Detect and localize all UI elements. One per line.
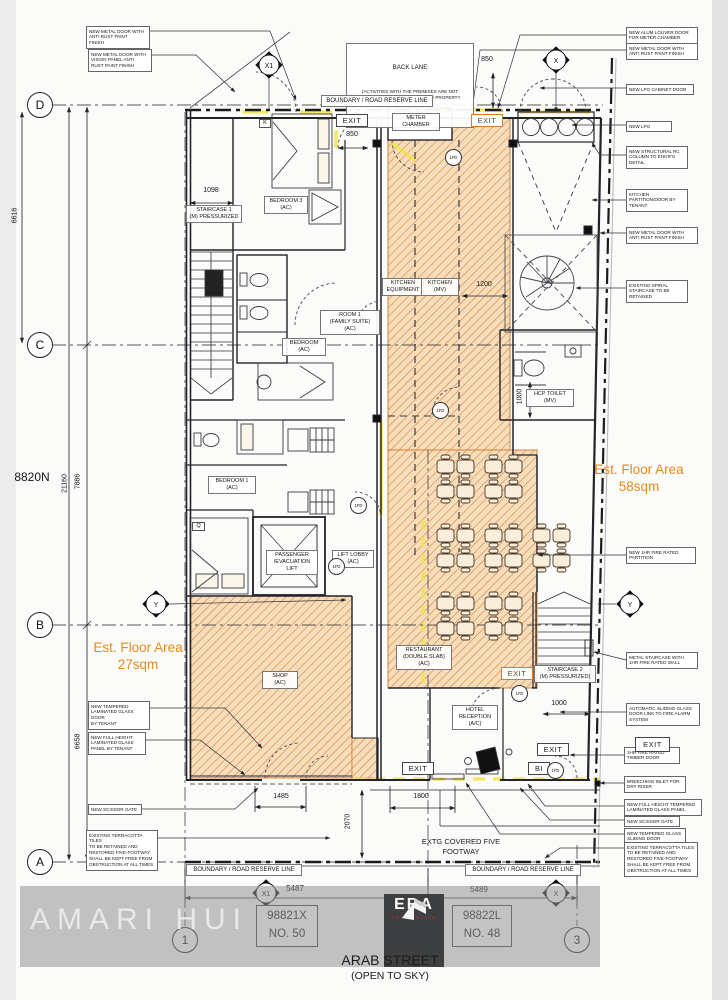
room-room1: ROOM 1 (FAMILY SUITE) (AC)	[320, 310, 380, 335]
room-bedroom1: BEDROOM 1 (AC)	[208, 476, 256, 494]
annotation-scissor-gate-right: NEW SCISSOR GATE	[624, 816, 680, 827]
fd-symbol-6: 1FD	[547, 762, 564, 779]
floor-area-shop: Est. Floor Area 27sqm	[90, 640, 186, 674]
dim-1000-hcp: 1000	[517, 382, 524, 412]
fd-symbol-5: 1FD	[511, 685, 528, 702]
grid-row-a: A	[27, 849, 53, 875]
room-meter-chamber: METER CHAMBER	[392, 113, 440, 131]
annotation-metal-door-top: NEW METAL DOOR WITH ANTI RUST PAINT FINI…	[626, 43, 698, 60]
annotation-auto-sliding: AUTOMATIC SLIDING GLASS DOOR LINK TO FIR…	[626, 703, 700, 726]
annotation-new-metal-door: NEW METAL DOOR WITH ANTI RUST PAINT FINI…	[86, 26, 150, 49]
room-bedroom3: BEDROOM 3 (AC)	[264, 196, 308, 214]
svg-text:X1: X1	[265, 63, 274, 70]
grid-row-d: D	[27, 92, 53, 118]
room-kitchen-equipment: KITCHEN EQUIPMENT	[382, 278, 424, 296]
room-staircase2: STAIRCASE 2 (M) PRESSURIZED)	[534, 665, 596, 683]
annotation-terracotta-left: EXISTING TERRACOTTA TILES TO BE RETAINED…	[86, 830, 158, 871]
annotation-breeching-inlet: BREECHING INLET FOR DRY RISER	[624, 776, 686, 793]
annotation-tempered-panel: NEW FULL HEIGHT TEMPERED LAMINATED GLASS…	[624, 799, 702, 816]
annotation-terracotta-right: EXISTING TERRACOTTA TILES TO BE RETAINED…	[624, 842, 698, 877]
street-note: (OPEN TO SKY)	[330, 970, 450, 982]
bed-tag-q: Q	[192, 522, 205, 531]
boundary-label-bottom-left: BOUNDARY / ROAD RESERVE LINE	[186, 864, 302, 876]
dim-1200: 1200	[470, 281, 498, 288]
grid-row-b: B	[27, 612, 53, 638]
annotation-glass-panel-tenant: NEW FULL HEIGHT LAMINATED GLASS PANEL BY…	[88, 732, 146, 755]
svg-text:X: X	[554, 58, 559, 65]
north-reference: 8820N	[8, 470, 56, 484]
exit-right-margin: EXIT	[635, 737, 670, 752]
fd-symbol-1: 1FD	[445, 149, 462, 166]
room-shop: SHOP (AC)	[262, 671, 298, 689]
svg-text:Y: Y	[154, 602, 159, 609]
marker-y-left: Y	[143, 591, 169, 617]
boundary-label-bottom-right: BOUNDARY / ROAD RESERVE LINE	[465, 864, 581, 876]
exit-top-meter: EXIT	[471, 114, 503, 127]
svg-text:Y: Y	[628, 602, 633, 609]
back-lane-title: BACK LANE	[350, 64, 470, 71]
annotation-kitchen-partition: KITCHEN PARTITION/DOOR BY TENANT	[626, 189, 688, 212]
era-logo-roof-icon	[384, 894, 444, 924]
fd-symbol-4: 1FD	[328, 558, 345, 575]
dim-1800: 1800	[406, 793, 436, 800]
annotation-fire-partition: NEW 1HR FIRE RATED PARTITION	[626, 547, 696, 564]
exit-shop-front: EXIT	[402, 762, 434, 775]
spiral-staircase	[505, 235, 597, 332]
dim-2070: 2070	[345, 807, 352, 837]
marker-x1-top: X1	[256, 52, 282, 78]
room-restaurant: RESTAURANT (DOUBLE SLAB) (AC)	[396, 645, 452, 670]
room-hcp-toilet: HCP TOILET (MV)	[526, 389, 574, 407]
annotation-new-lpg: NEW LPG	[626, 121, 672, 132]
annotation-metal-door-mid: NEW METAL DOOR WITH ANTI RUST PAINT FINI…	[626, 227, 698, 244]
annotation-glass-door-tenant: NEW TEMPERED LAMINATED GLASS DOOR BY TEN…	[88, 701, 150, 730]
annotation-spiral-staircase: EXISTING SPIRAL STAIRCASE TO BE RETAINED	[626, 280, 688, 303]
floor-plan-page: X1 X Y Y X1 X NEW METAL DOOR WITH ANTI R…	[0, 0, 728, 1000]
dim-1000-stair2: 1000	[544, 700, 574, 707]
dim-850-exit: 850	[338, 131, 366, 138]
annotation-metal-staircase: METAL STAIRCASE WITH 1HR FIRE RATED WALL	[626, 652, 698, 669]
dim-1098: 1098	[196, 187, 226, 194]
dim-7886: 7886	[75, 466, 82, 498]
watermark-name: AMARI HUI	[30, 903, 248, 937]
exit-restaurant: EXIT	[501, 667, 533, 680]
dim-6658: 6658	[75, 726, 82, 758]
annotation-structural-rc: NEW STRUCTURAL RC COLUMN TO ENGR'S DETAI…	[626, 146, 688, 169]
dim-1485: 1485	[266, 793, 296, 800]
annotation-alum-louver: NEW ALUM LOUVER DOOR FOR METER CHAMBER	[626, 27, 698, 44]
annotation-new-metal-door-vision: NEW METAL DOOR WITH VISION PANEL ANTI RU…	[88, 49, 152, 72]
room-bedroom: BEDROOM (AC)	[282, 338, 326, 356]
floor-area-restaurant: Est. Floor Area 58sqm	[592, 462, 686, 496]
room-staircase1: STAIRCASE 1 (M) PRESSURIZED	[186, 205, 242, 223]
dim-21160: 21160	[62, 466, 69, 502]
footway-label: EXTG COVERED FIVE FOOTWAY	[415, 837, 507, 857]
fd-symbol-2: 1FD	[432, 402, 449, 419]
dim-850-meter: 850	[474, 56, 500, 63]
dim-6616: 6616	[12, 201, 19, 231]
exit-top-left: EXIT	[336, 114, 368, 127]
room-lift: PASSENGER /EVACUATION LIFT	[266, 550, 318, 575]
staircase-1	[191, 252, 232, 394]
exit-stair2: EXIT	[537, 743, 569, 756]
boundary-label-top: BOUNDARY / ROAD RESERVE LINE	[321, 95, 433, 107]
fd-symbol-3: 1FD	[350, 497, 367, 514]
grid-row-c: C	[27, 332, 53, 358]
bed-tag-k: K	[259, 119, 271, 128]
marker-y-right: Y	[617, 591, 643, 617]
marker-x-top: X	[543, 47, 569, 73]
room-hotel-reception: HOTEL RECEPTION (A/C)	[452, 705, 498, 730]
street-name: ARAB STREET	[330, 952, 450, 968]
annotation-scissor-gate-left: NEW SCISSOR GATE	[88, 804, 142, 815]
room-kitchen: KITCHEN (MV)	[421, 278, 459, 296]
annotation-lpg-cabinet: NEW LPG CABINET DOOR	[626, 84, 694, 95]
